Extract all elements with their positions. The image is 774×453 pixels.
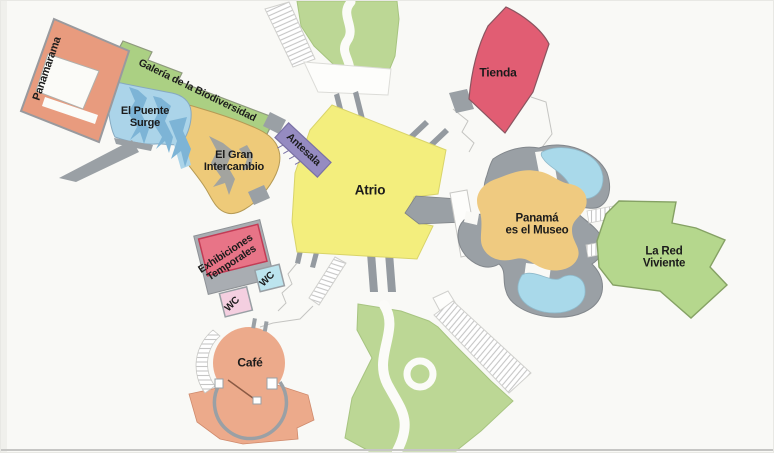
cafe-counter	[253, 397, 261, 404]
region-panama-es-el-museo-shape	[477, 170, 587, 270]
garden-north-path	[344, 2, 351, 75]
cafe-door-right	[267, 378, 277, 389]
floor-plan-svg	[1, 1, 774, 453]
left-edge-shade	[1, 1, 7, 453]
cafe-door-left	[215, 379, 223, 388]
floor-plan: Panamarama Galería de la Biodiversidad E…	[0, 0, 774, 453]
